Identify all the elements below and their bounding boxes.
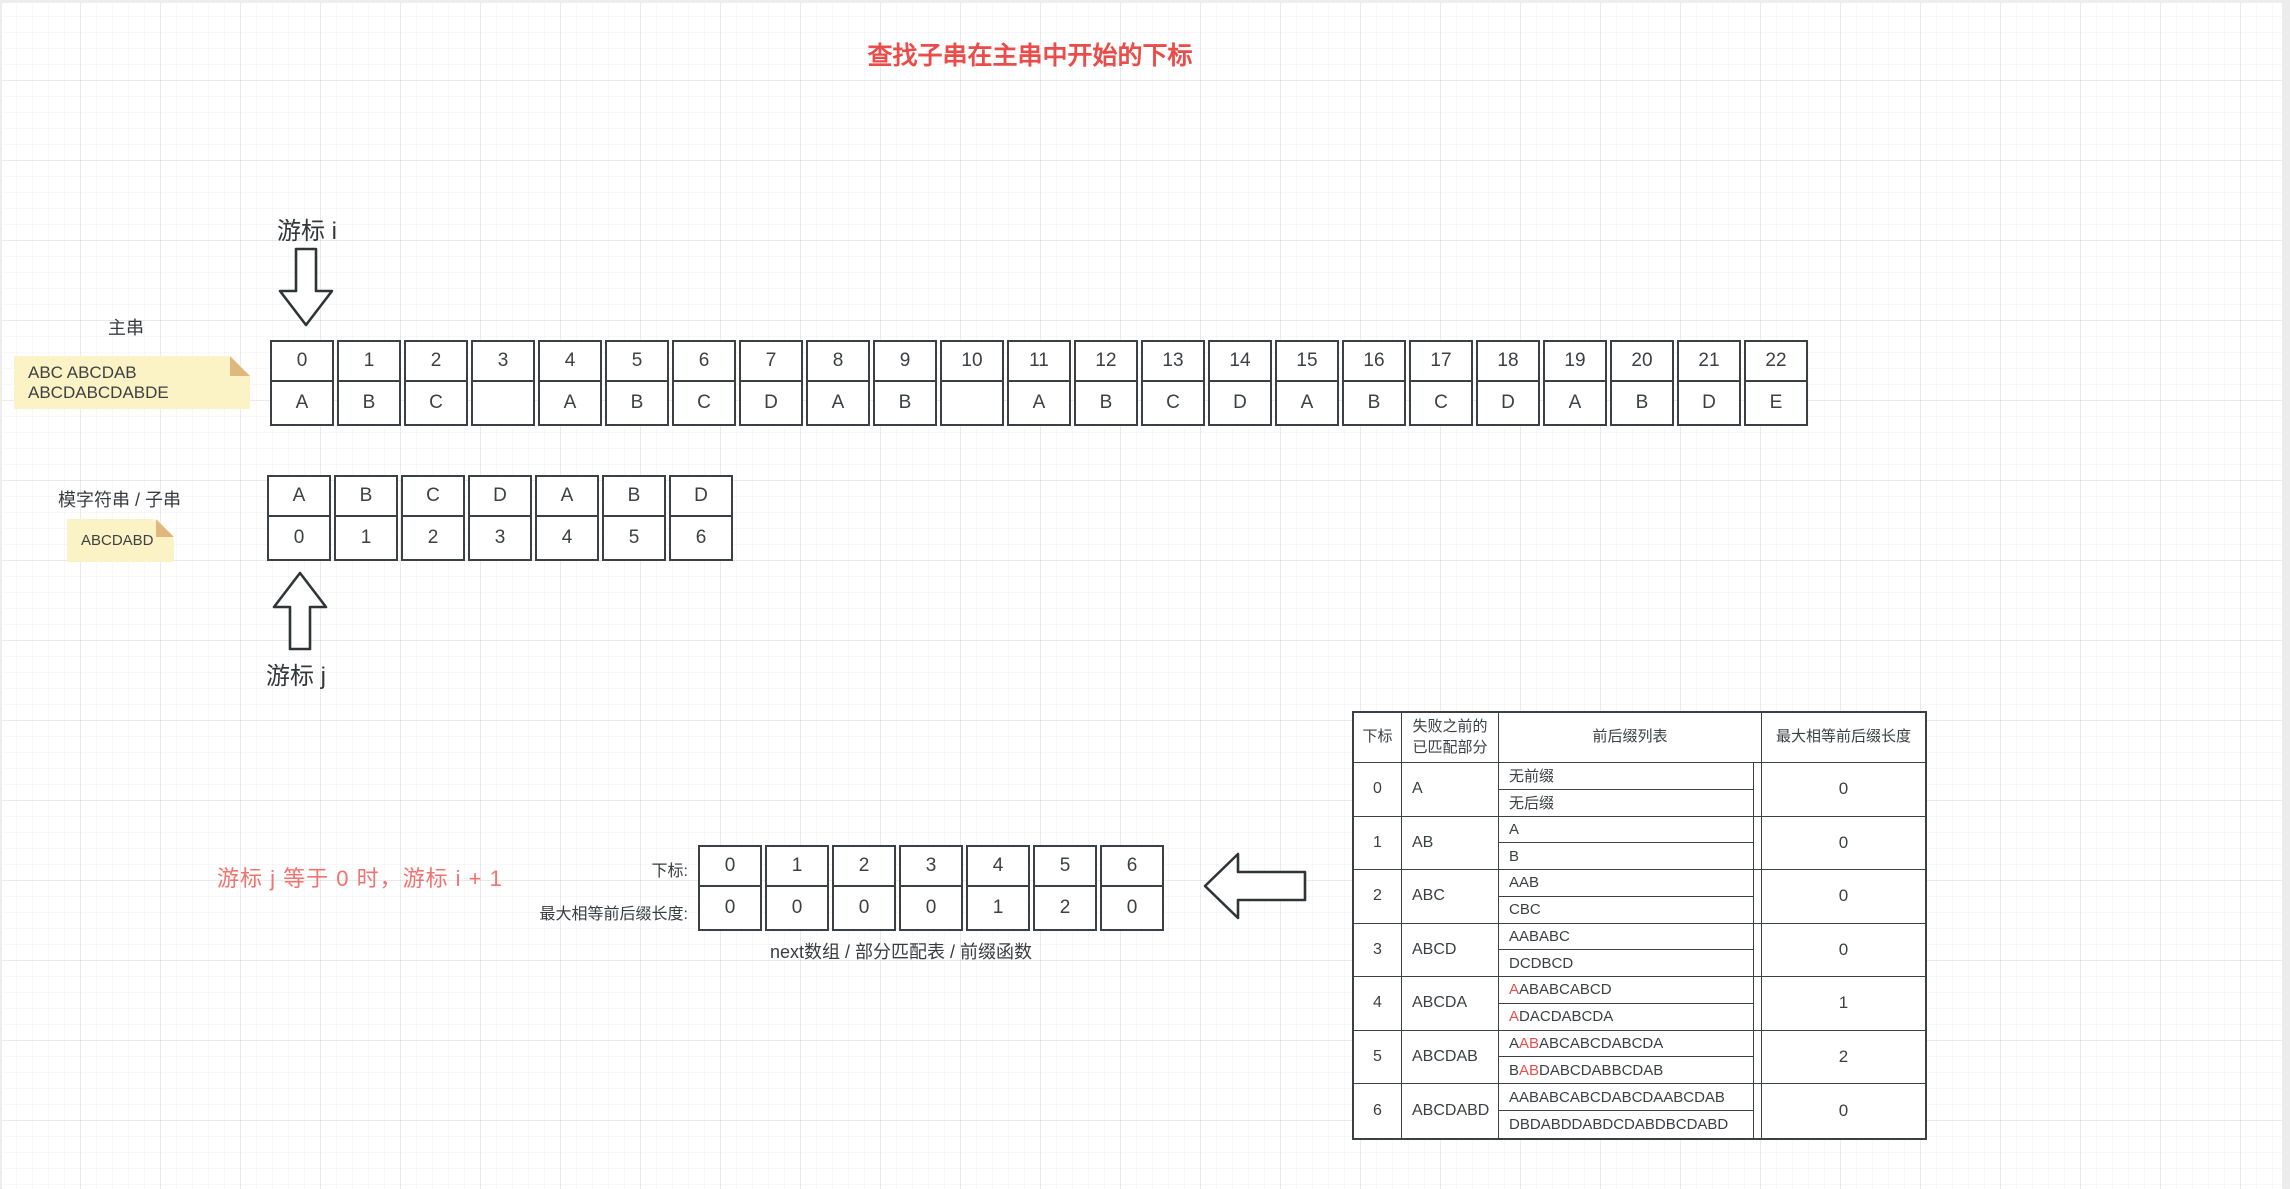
- token: DA: [1519, 1008, 1540, 1025]
- main-string-sticky-note[interactable]: ABC ABCDAB ABCDABCDABDE: [14, 356, 250, 409]
- down-arrow-icon[interactable]: [278, 247, 334, 327]
- token: A: [1509, 821, 1519, 838]
- token: ABC: [1539, 1035, 1570, 1052]
- prefix-row-matched: ABCDA: [1402, 977, 1499, 1031]
- token: CDA: [1540, 1008, 1572, 1025]
- main-table-column: 0A: [270, 340, 334, 426]
- char-cell: B: [1076, 382, 1136, 424]
- pattern-table-column: B5: [602, 475, 666, 561]
- index-cell: 4: [537, 517, 597, 559]
- pattern-table-column: D3: [468, 475, 532, 561]
- token: ABCDA: [1612, 1035, 1664, 1052]
- pattern-table-column: C2: [401, 475, 465, 561]
- next-value-cell: 0: [767, 887, 827, 929]
- token: B: [1509, 848, 1519, 865]
- prefix-table-header: 最大相等前后缀长度: [1762, 713, 1925, 763]
- token: ABCD: [1570, 1035, 1612, 1052]
- index-cell: 9: [875, 342, 935, 382]
- token: BCDAB: [1612, 1062, 1664, 1079]
- prefix-row-index: 2: [1354, 870, 1402, 924]
- token: ABD: [1541, 1116, 1572, 1133]
- char-cell: D: [1679, 382, 1739, 424]
- lists-box: A AB ABCD CD BCD: [1499, 924, 1754, 977]
- index-cell: 2: [406, 342, 466, 382]
- main-table-column: 9B: [873, 340, 937, 426]
- token: C: [1509, 901, 1520, 918]
- prefix-row-index: 6: [1354, 1084, 1402, 1138]
- pattern-sticky-text: ABCDABD: [81, 532, 154, 549]
- main-table-column: 5B: [605, 340, 669, 426]
- main-string-sticky-text: ABC ABCDAB ABCDABCDABDE: [28, 363, 250, 403]
- token: CD: [1520, 955, 1542, 972]
- prefix-suffix-table[interactable]: 下标失败之前的已匹配部分前后缀列表最大相等前后缀长度0A无前缀无后缀01ABAB…: [1352, 711, 1927, 1140]
- index-cell: 12: [1076, 342, 1136, 382]
- token: D: [1509, 1116, 1520, 1133]
- token: DAB: [1539, 1062, 1570, 1079]
- canvas-left-edge: [0, 0, 2, 1189]
- main-table-column: 2C: [404, 340, 468, 426]
- main-table-column: 13C: [1141, 340, 1205, 426]
- prefix-list: A AB ABC ABCD ABCDA ABCDAB: [1499, 1084, 1753, 1111]
- pattern-table-column: A4: [535, 475, 599, 561]
- main-table-column: 8A: [806, 340, 870, 426]
- main-string-label[interactable]: 主串: [108, 314, 144, 340]
- token: AB: [1519, 1089, 1539, 1106]
- next-table-column: 20: [832, 845, 896, 931]
- token: A: [1509, 1089, 1519, 1106]
- next-table-column: 52: [1033, 845, 1097, 931]
- token: ABCDA: [1612, 1089, 1664, 1106]
- token: ABC: [1539, 981, 1570, 998]
- token: A: [1509, 874, 1519, 891]
- pattern-table-column: A0: [267, 475, 331, 561]
- main-table-column: 4A: [538, 340, 602, 426]
- prefix-row-value: 0: [1762, 924, 1925, 978]
- index-cell: 13: [1143, 342, 1203, 382]
- index-cell: 1: [339, 342, 399, 382]
- char-cell: B: [339, 382, 399, 424]
- char-cell: A: [1009, 382, 1069, 424]
- main-table-column: 7D: [739, 340, 803, 426]
- prefix-suffix-lists: 无前缀无后缀: [1499, 763, 1762, 817]
- char-cell: C: [1411, 382, 1471, 424]
- token: BCDA: [1572, 1008, 1614, 1025]
- lists-box: A AB ABC ABCDA DA CDA BCDA: [1499, 977, 1754, 1030]
- token: CDAB: [1570, 1062, 1612, 1079]
- token: AB: [1519, 981, 1539, 998]
- char-cell: E: [1746, 382, 1806, 424]
- token: BD: [1520, 1116, 1541, 1133]
- main-table-column: 12B: [1074, 340, 1138, 426]
- next-table-column: 30: [899, 845, 963, 931]
- index-cell: 11: [1009, 342, 1069, 382]
- token: BCD: [1542, 955, 1574, 972]
- highlight-token: AB: [1519, 1035, 1539, 1052]
- char-cell: B: [336, 477, 396, 517]
- lists-box: A AB ABC ABCD ABCDAB AB DAB CDAB BCDAB: [1499, 1031, 1754, 1084]
- pattern-table[interactable]: A0B1C2D3A4B5D6: [267, 475, 733, 561]
- next-value-cell: 2: [1035, 887, 1095, 929]
- index-cell: 8: [808, 342, 868, 382]
- main-string-table[interactable]: 0A1B2C34A5B6C7D8A9B1011A12B13C14D15A16B1…: [270, 340, 1808, 426]
- main-table-column: 11A: [1007, 340, 1071, 426]
- suffix-list: D BD ABD DABD CDABD BCDABD: [1499, 1111, 1753, 1137]
- token: ABCD: [1570, 1089, 1612, 1106]
- prefix-row-value: 0: [1762, 817, 1925, 871]
- main-table-column: 22E: [1744, 340, 1808, 426]
- prefix-row-value: 0: [1762, 1084, 1925, 1138]
- char-cell: D: [1478, 382, 1538, 424]
- index-cell: 4: [968, 847, 1028, 887]
- pattern-string-label[interactable]: 模字符串 / 子串: [58, 486, 181, 512]
- token: ABCDAB: [1663, 1089, 1725, 1106]
- index-cell: 20: [1612, 342, 1672, 382]
- prefix-list: A AB ABC ABCD: [1499, 977, 1753, 1004]
- prefix-row-matched: ABCDABD: [1402, 1084, 1499, 1138]
- index-cell: 21: [1679, 342, 1739, 382]
- main-table-column: 21D: [1677, 340, 1741, 426]
- index-cell: 17: [1411, 342, 1471, 382]
- index-cell: 4: [540, 342, 600, 382]
- main-table-column: 19A: [1543, 340, 1607, 426]
- token: AB: [1519, 928, 1539, 945]
- lists-box: A ABC BC: [1499, 870, 1754, 923]
- prefix-suffix-lists: A AB ABC ABCD ABCDA ABCDABD BD ABD DABD …: [1499, 1084, 1762, 1138]
- index-cell: 7: [741, 342, 801, 382]
- index-cell: 5: [604, 517, 664, 559]
- char-cell: C: [674, 382, 734, 424]
- index-cell: 16: [1344, 342, 1404, 382]
- char-cell: A: [1277, 382, 1337, 424]
- index-cell: 0: [700, 847, 760, 887]
- next-value-cell: 1: [968, 887, 1028, 929]
- prefix-list: 无前缀: [1499, 763, 1753, 790]
- token: CDABD: [1613, 1116, 1666, 1133]
- token: DABD: [1572, 1116, 1614, 1133]
- index-cell: 1: [336, 517, 396, 559]
- prefix-list: A: [1499, 817, 1753, 844]
- main-table-column: 6C: [672, 340, 736, 426]
- prefix-table-header: 下标: [1354, 713, 1402, 763]
- char-cell: A: [272, 382, 332, 424]
- index-cell: 6: [1102, 847, 1162, 887]
- prefix-list: A AB: [1499, 870, 1753, 897]
- char-cell: C: [1143, 382, 1203, 424]
- token: 无后缀: [1509, 792, 1554, 813]
- prefix-row-value: 0: [1762, 870, 1925, 924]
- main-table-column: 17C: [1409, 340, 1473, 426]
- index-cell: 14: [1210, 342, 1270, 382]
- next-value-cell: 0: [901, 887, 961, 929]
- index-cell: 2: [834, 847, 894, 887]
- prefix-suffix-lists: A AB ABC ABCDA DA CDA BCDA: [1499, 977, 1762, 1031]
- char-cell: C: [406, 382, 466, 424]
- main-table-column: 10: [940, 340, 1004, 426]
- index-cell: 5: [1035, 847, 1095, 887]
- main-table-column: 18D: [1476, 340, 1540, 426]
- char-cell: D: [1210, 382, 1270, 424]
- main-table-column: 20B: [1610, 340, 1674, 426]
- pattern-table-column: B1: [334, 475, 398, 561]
- next-array-caption[interactable]: next数组 / 部分匹配表 / 前缀函数: [668, 938, 1134, 964]
- index-cell: 19: [1545, 342, 1605, 382]
- char-cell: A: [808, 382, 868, 424]
- index-cell: 1: [767, 847, 827, 887]
- suffix-list: A DA CDA BCDA: [1499, 1004, 1753, 1030]
- main-table-column: 14D: [1208, 340, 1272, 426]
- prefix-table-header: 前后缀列表: [1499, 713, 1762, 763]
- prefix-row-value: 2: [1762, 1031, 1925, 1085]
- index-cell: 5: [607, 342, 667, 382]
- next-index-label[interactable]: 下标:: [450, 857, 688, 881]
- next-value-cell: 0: [1102, 887, 1162, 929]
- highlight-token: A: [1509, 1008, 1519, 1025]
- index-cell: 6: [674, 342, 734, 382]
- lists-box: 无前缀无后缀: [1499, 763, 1754, 816]
- token: D: [1509, 955, 1520, 972]
- main-table-column: 3: [471, 340, 535, 426]
- index-cell: 0: [272, 342, 332, 382]
- token: A: [1509, 1035, 1519, 1052]
- next-table-column: 60: [1100, 845, 1164, 931]
- char-cell: B: [607, 382, 667, 424]
- char-cell: [473, 382, 533, 424]
- index-cell: 3: [901, 847, 961, 887]
- prefix-list: A AB ABC: [1499, 924, 1753, 951]
- char-cell: D: [741, 382, 801, 424]
- next-array-table[interactable]: 00102030415260: [698, 845, 1164, 931]
- char-cell: A: [1545, 382, 1605, 424]
- prefix-row-value: 0: [1762, 763, 1925, 817]
- prefix-suffix-lists: A ABC BC: [1499, 870, 1762, 924]
- token: BCDABD: [1666, 1116, 1729, 1133]
- prefix-table-header: 失败之前的已匹配部分: [1402, 713, 1499, 763]
- char-cell: A: [537, 477, 597, 517]
- next-value-cell: 0: [834, 887, 894, 929]
- prefix-row-index: 3: [1354, 924, 1402, 978]
- token: ABCD: [1570, 981, 1612, 998]
- index-cell: 18: [1478, 342, 1538, 382]
- token: 无前缀: [1509, 765, 1554, 786]
- index-cell: 6: [671, 517, 731, 559]
- char-cell: D: [671, 477, 731, 517]
- prefix-row-index: 5: [1354, 1031, 1402, 1085]
- prefix-suffix-lists: A AB ABCD CD BCD: [1499, 924, 1762, 978]
- char-cell: B: [604, 477, 664, 517]
- suffix-list: C BC: [1499, 897, 1753, 923]
- suffix-list: B: [1499, 843, 1753, 869]
- page-title: 查找子串在主串中开始的下标: [700, 36, 1360, 72]
- prefix-list: A AB ABC ABCD ABCDA: [1499, 1031, 1753, 1058]
- char-cell: B: [875, 382, 935, 424]
- up-arrow-icon[interactable]: [272, 571, 328, 651]
- char-cell: B: [1344, 382, 1404, 424]
- index-cell: 3: [470, 517, 530, 559]
- token: AB: [1519, 874, 1539, 891]
- index-cell: 3: [473, 342, 533, 382]
- index-cell: 0: [269, 517, 329, 559]
- token: ABC: [1539, 1089, 1570, 1106]
- highlight-token: AB: [1519, 1062, 1539, 1079]
- suffix-list: D CD BCD: [1499, 950, 1753, 976]
- prefix-row-matched: AB: [1402, 817, 1499, 871]
- next-table-column: 41: [966, 845, 1030, 931]
- prefix-suffix-lists: A AB ABC ABCD ABCDAB AB DAB CDAB BCDAB: [1499, 1031, 1762, 1085]
- char-cell: [942, 382, 1002, 424]
- vertical-scrollbar[interactable]: [2282, 0, 2290, 1189]
- lists-box: A AB ABC ABCD ABCDA ABCDABD BD ABD DABD …: [1499, 1084, 1754, 1138]
- next-value-label[interactable]: 最大相等前后缀长度:: [380, 900, 688, 924]
- char-cell: A: [540, 382, 600, 424]
- prefix-row-matched: A: [1402, 763, 1499, 817]
- pattern-sticky-note[interactable]: ABCDABD: [67, 519, 174, 562]
- prefix-row-value: 1: [1762, 977, 1925, 1031]
- prefix-row-index: 1: [1354, 817, 1402, 871]
- main-table-column: 15A: [1275, 340, 1339, 426]
- token: BC: [1520, 901, 1541, 918]
- highlight-token: A: [1509, 981, 1519, 998]
- index-cell: 15: [1277, 342, 1337, 382]
- prefix-row-matched: ABCDAB: [1402, 1031, 1499, 1085]
- next-table-column: 10: [765, 845, 829, 931]
- prefix-row-matched: ABCD: [1402, 924, 1499, 978]
- main-table-column: 16B: [1342, 340, 1406, 426]
- char-cell: B: [1612, 382, 1672, 424]
- prefix-row-index: 0: [1354, 763, 1402, 817]
- left-arrow-icon[interactable]: [1202, 850, 1308, 922]
- next-table-column: 00: [698, 845, 762, 931]
- diagram-canvas[interactable]: 查找子串在主串中开始的下标 游标 i 主串 ABC ABCDAB ABCDABC…: [0, 0, 2290, 1189]
- token: ABC: [1539, 928, 1570, 945]
- pattern-table-column: D6: [669, 475, 733, 561]
- prefix-row-matched: ABC: [1402, 870, 1499, 924]
- token: A: [1509, 928, 1519, 945]
- index-cell: 10: [942, 342, 1002, 382]
- cursor-i-label[interactable]: 游标 i: [277, 211, 337, 246]
- next-value-cell: 0: [700, 887, 760, 929]
- prefix-row-index: 4: [1354, 977, 1402, 1031]
- prefix-suffix-lists: AB: [1499, 817, 1762, 871]
- suffix-list: B AB DAB CDAB BCDAB: [1499, 1057, 1753, 1083]
- main-table-column: 1B: [337, 340, 401, 426]
- index-cell: 2: [403, 517, 463, 559]
- canvas-top-edge: [0, 0, 2290, 3]
- index-cell: 22: [1746, 342, 1806, 382]
- char-cell: D: [470, 477, 530, 517]
- char-cell: A: [269, 477, 329, 517]
- cursor-j-label[interactable]: 游标 j: [266, 656, 326, 691]
- char-cell: C: [403, 477, 463, 517]
- token: B: [1509, 1062, 1519, 1079]
- lists-box: AB: [1499, 817, 1754, 870]
- suffix-list: 无后缀: [1499, 790, 1753, 816]
